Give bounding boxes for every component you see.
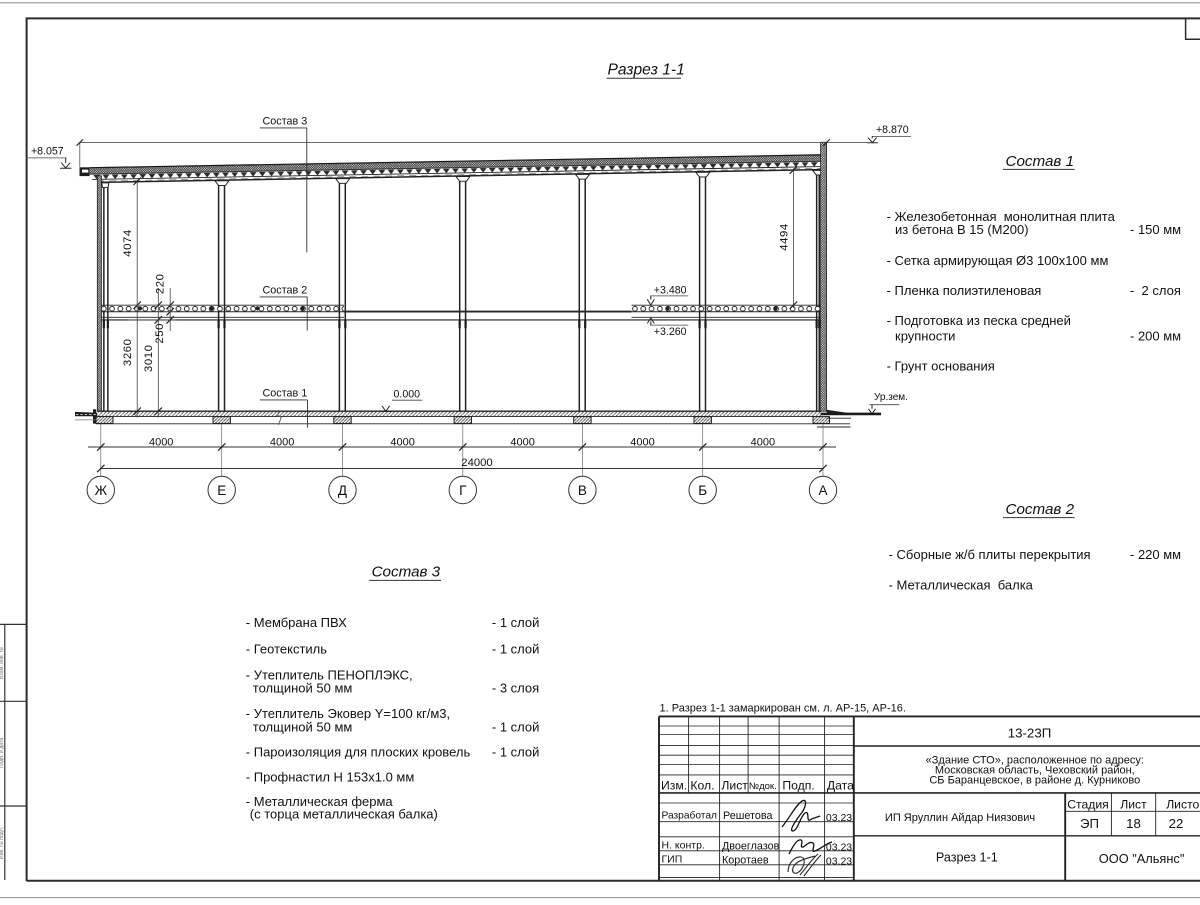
svg-text:3010: 3010 bbox=[143, 345, 155, 373]
svg-text:22: 22 bbox=[1169, 816, 1184, 831]
svg-text:ИП Яруллин Айдар Ниязович: ИП Яруллин Айдар Ниязович bbox=[885, 812, 1035, 824]
svg-text:4074: 4074 bbox=[122, 229, 134, 257]
svg-text:крупности: крупности bbox=[895, 328, 955, 343]
svg-text:- 1 слой: - 1 слой bbox=[492, 615, 540, 630]
svg-text:+8.870: +8.870 bbox=[876, 124, 909, 136]
svg-text:Разрез 1-1: Разрез 1-1 bbox=[936, 850, 998, 864]
svg-text:18: 18 bbox=[1126, 816, 1141, 831]
svg-text:- Подготовка из песка средней: - Подготовка из песка средней bbox=[887, 313, 1071, 328]
svg-text:Состав 2: Состав 2 bbox=[263, 285, 308, 297]
svg-text:Состав 2: Состав 2 bbox=[1006, 501, 1075, 518]
svg-text:4000: 4000 bbox=[270, 436, 294, 448]
svg-text:- Профнастил Н 153х1.0 мм: - Профнастил Н 153х1.0 мм bbox=[246, 769, 415, 784]
svg-text:Н. контр.: Н. контр. bbox=[662, 839, 705, 851]
svg-text:- Пароизоляция для плоских кро: - Пароизоляция для плоских кровель bbox=[246, 744, 471, 759]
svg-text:3260: 3260 bbox=[122, 339, 134, 367]
svg-text:№док.: №док. bbox=[749, 781, 777, 792]
svg-text:4000: 4000 bbox=[390, 436, 414, 448]
svg-text:- Металлическая балка: - Металлическая балка bbox=[889, 577, 1034, 592]
svg-text:В: В bbox=[578, 483, 587, 498]
svg-text:- 1 слой: - 1 слой bbox=[492, 744, 540, 759]
svg-text:- 3 слоя: - 3 слоя bbox=[492, 681, 539, 696]
svg-text:Листов: Листов bbox=[1166, 798, 1200, 812]
svg-text:ООО "Альянс": ООО "Альянс" bbox=[1099, 851, 1185, 866]
svg-text:Состав 3: Состав 3 bbox=[263, 115, 308, 127]
svg-text:Лист: Лист bbox=[1120, 798, 1147, 812]
svg-text:1. Разрез 1-1 замаркирован см.: 1. Разрез 1-1 замаркирован см. л. АР-15,… bbox=[660, 703, 906, 715]
svg-text:4000: 4000 bbox=[751, 436, 775, 448]
svg-text:- Мембрана ПВХ: - Мембрана ПВХ bbox=[246, 615, 347, 630]
svg-text:220: 220 bbox=[155, 273, 167, 294]
svg-text:Изм.: Изм. bbox=[661, 779, 687, 793]
svg-text:- Пленка полиэтиленовая: - Пленка полиэтиленовая bbox=[887, 283, 1042, 298]
svg-text:- 1 слой: - 1 слой bbox=[492, 719, 540, 734]
svg-text:Разработал: Разработал bbox=[662, 810, 718, 822]
svg-text:- 150 мм: - 150 мм bbox=[1130, 222, 1181, 237]
svg-text:Состав 1: Состав 1 bbox=[1006, 153, 1075, 170]
svg-text:Двоеглазов: Двоеглазов bbox=[722, 840, 780, 852]
svg-text:13-23П: 13-23П bbox=[1008, 725, 1052, 740]
svg-text:- 1 слой: - 1 слой bbox=[492, 641, 540, 656]
svg-text:- 2 слоя: - 2 слоя bbox=[1130, 283, 1181, 298]
svg-text:+3.480: +3.480 bbox=[654, 285, 687, 297]
svg-text:Подп.: Подп. bbox=[782, 779, 814, 793]
svg-text:Е: Е bbox=[217, 483, 226, 498]
svg-text:Состав 1: Состав 1 bbox=[263, 388, 308, 400]
svg-text:ГИП: ГИП bbox=[662, 854, 683, 866]
svg-text:Г: Г bbox=[459, 483, 467, 498]
svg-text:Инв. № подл.: Инв. № подл. bbox=[0, 827, 5, 859]
svg-text:03.23: 03.23 bbox=[826, 812, 852, 824]
svg-text:Б: Б bbox=[698, 483, 707, 498]
svg-text:из бетона В 15 (М200): из бетона В 15 (М200) bbox=[895, 222, 1029, 237]
svg-text:Состав 3: Состав 3 bbox=[372, 564, 441, 581]
svg-text:4000: 4000 bbox=[510, 436, 534, 448]
svg-text:- Геотекстиль: - Геотекстиль bbox=[246, 641, 327, 656]
svg-text:03.23: 03.23 bbox=[826, 855, 852, 867]
svg-text:Д: Д bbox=[338, 483, 347, 498]
svg-text:- Сборные ж/б плиты перекрытия: - Сборные ж/б плиты перекрытия bbox=[889, 547, 1091, 562]
svg-text:толщиной 50 мм: толщиной 50 мм bbox=[253, 681, 353, 696]
svg-text:250: 250 bbox=[154, 323, 166, 344]
svg-text:+3.260: +3.260 bbox=[654, 326, 687, 338]
svg-text:Стадия: Стадия bbox=[1067, 798, 1109, 812]
svg-text:ЭП: ЭП bbox=[1080, 816, 1099, 831]
svg-text:- 200 мм: - 200 мм bbox=[1130, 328, 1181, 343]
svg-text:Кол.: Кол. bbox=[690, 779, 714, 793]
svg-text:Коротаев: Коротаев bbox=[722, 854, 769, 866]
svg-text:Подп. и дата: Подп. и дата bbox=[0, 738, 5, 769]
svg-text:- Сетка армирующая Ø3 100х100: - Сетка армирующая Ø3 100х100 мм bbox=[887, 253, 1109, 268]
svg-text:- Грунт основания: - Грунт основания bbox=[887, 358, 995, 373]
svg-text:- 220 мм: - 220 мм bbox=[1130, 547, 1181, 562]
svg-text:+8.057: +8.057 bbox=[31, 146, 64, 158]
svg-text:Лист: Лист bbox=[721, 779, 748, 793]
svg-text:Дата: Дата bbox=[827, 779, 854, 793]
svg-text:4000: 4000 bbox=[630, 436, 654, 448]
svg-text:СБ Баранцевское, в районе д. К: СБ Баранцевское, в районе д. Курниково bbox=[929, 775, 1140, 787]
svg-text:Взам. инв. №: Взам. инв. № bbox=[0, 646, 5, 679]
svg-text:Решетова: Решетова bbox=[723, 810, 773, 822]
svg-text:0.000: 0.000 bbox=[394, 389, 421, 401]
svg-text:Разрез 1-1: Разрез 1-1 bbox=[608, 62, 685, 79]
svg-text:А: А bbox=[818, 483, 827, 498]
svg-text:4000: 4000 bbox=[149, 436, 173, 448]
svg-text:толщиной 50 мм: толщиной 50 мм bbox=[253, 719, 353, 734]
svg-text:Ж: Ж bbox=[95, 483, 108, 498]
svg-text:4494: 4494 bbox=[779, 223, 791, 251]
svg-text:24000: 24000 bbox=[461, 457, 492, 469]
svg-text:Ур.зем.: Ур.зем. bbox=[874, 392, 908, 403]
svg-text:(с торца металлическая балка): (с торца металлическая балка) bbox=[250, 807, 438, 822]
